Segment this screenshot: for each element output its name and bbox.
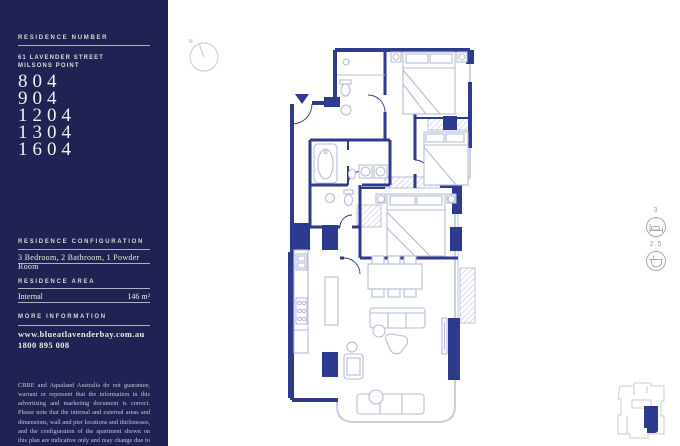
ensuite-fixtures (337, 59, 385, 115)
dining-table-icon (368, 264, 422, 289)
dining-furniture (368, 256, 422, 297)
residence-number-label: RESIDENCE NUMBER (18, 35, 150, 41)
island-bench (325, 277, 338, 325)
bathtub-icon (314, 144, 337, 183)
compass-icon: N (189, 39, 218, 71)
compass-north-label: N (189, 39, 193, 45)
bedroom3-furniture (424, 132, 468, 185)
coffee-table-icon (386, 334, 408, 354)
divider (18, 45, 150, 46)
sofa-icon (357, 394, 424, 414)
residence-configuration-label: RESIDENCE CONFIGURATION (18, 239, 150, 245)
phone-number: 1800 895 008 (18, 340, 150, 351)
toilet-icon (349, 169, 356, 179)
divider (18, 263, 150, 264)
divider (18, 302, 150, 303)
residence-configuration-value: 3 Bedroom, 2 Bathroom, 1 Powder Room (18, 253, 150, 271)
divider (18, 325, 150, 326)
address-line-1: 61 LAVENDER STREET (18, 55, 150, 63)
bed-icon (647, 218, 666, 237)
divider (18, 249, 150, 250)
contact-block: www.blueatlavenderbay.com.au 1800 895 00… (18, 329, 150, 351)
more-information-label: MORE INFORMATION (18, 314, 150, 320)
website-link[interactable]: www.blueatlavenderbay.com.au (18, 329, 150, 340)
brochure-page: RESIDENCE NUMBER 61 LAVENDER STREET MILS… (0, 0, 680, 446)
residence-number-item: 1604 (18, 141, 150, 158)
address-line-2: MILSONS POINT (18, 63, 150, 71)
side-table-icon (347, 342, 357, 352)
residence-numbers-list: 804 904 1204 1304 1604 (18, 73, 150, 158)
master-bedroom-furniture (376, 194, 456, 256)
residence-area-row: Internal 146 m² (18, 292, 150, 301)
divider (18, 288, 150, 289)
address: 61 LAVENDER STREET MILSONS POINT (18, 55, 150, 70)
bathroom-fixtures (314, 144, 387, 183)
key-plan (618, 383, 664, 438)
area-name: Internal (18, 292, 43, 301)
bedroom-count: 3 (647, 207, 666, 237)
basin-icon (341, 105, 351, 115)
powder-room-fixtures (326, 190, 354, 206)
floor-plan: N (168, 0, 680, 446)
bed-icon (403, 52, 455, 114)
toilet-icon (340, 80, 351, 84)
bathroom-count: 2.5 (647, 241, 666, 271)
area-value: 146 m² (127, 292, 150, 301)
disclaimer-text: CBRE and Aqualand Australia do not guara… (18, 381, 150, 446)
kitchen-fixtures (294, 250, 338, 353)
living-furniture (344, 308, 447, 414)
sidebar: RESIDENCE NUMBER 61 LAVENDER STREET MILS… (0, 0, 168, 446)
entry-arrow-icon (295, 94, 309, 104)
bedroom-count-value: 3 (654, 207, 659, 214)
shower-icon (343, 59, 349, 65)
bath-icon (647, 252, 666, 271)
bed-icon (387, 194, 445, 256)
basin-icon (326, 194, 335, 203)
bathroom-count-value: 2.5 (650, 241, 663, 248)
bedroom2-furniture (391, 52, 467, 114)
residence-area-label: RESIDENCE AREA (18, 279, 150, 285)
side-table-icon (373, 325, 385, 337)
toilet-icon (344, 190, 353, 194)
